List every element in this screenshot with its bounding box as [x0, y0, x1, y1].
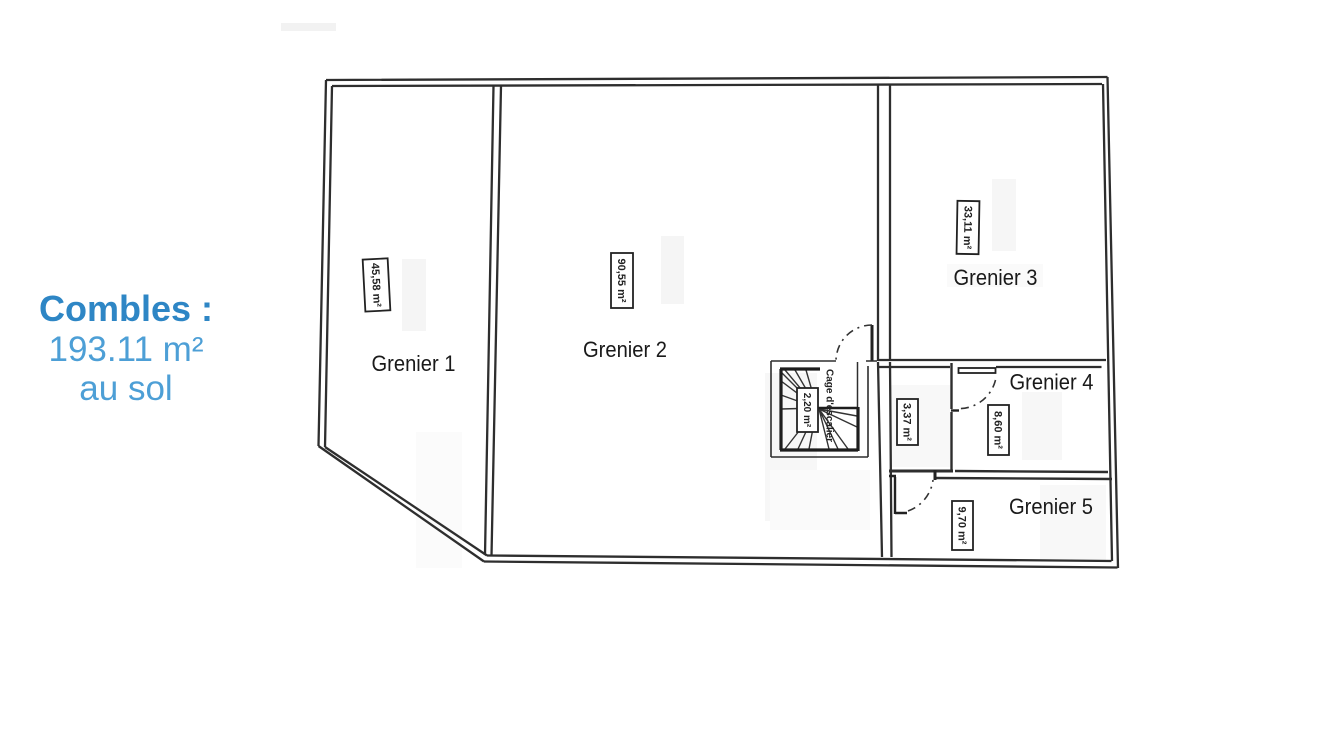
svg-text:2,20 m²: 2,20 m² [801, 393, 812, 428]
svg-text:3,37 m²: 3,37 m² [901, 403, 913, 441]
svg-text:Grenier 5: Grenier 5 [1009, 494, 1093, 519]
svg-text:Cage d'escalier: Cage d'escalier [824, 369, 835, 442]
svg-text:45,58 m²: 45,58 m² [369, 263, 383, 308]
svg-text:Grenier 1: Grenier 1 [372, 351, 456, 376]
svg-text:9,70 m²: 9,70 m² [956, 507, 968, 545]
svg-text:8,60 m²: 8,60 m² [992, 411, 1004, 449]
svg-text:33,11 m²: 33,11 m² [961, 206, 974, 250]
svg-text:90,55 m²: 90,55 m² [615, 258, 627, 302]
svg-text:Grenier 3: Grenier 3 [954, 265, 1038, 290]
svg-text:Grenier 4: Grenier 4 [1010, 370, 1094, 395]
svg-text:Grenier 2: Grenier 2 [583, 337, 667, 362]
